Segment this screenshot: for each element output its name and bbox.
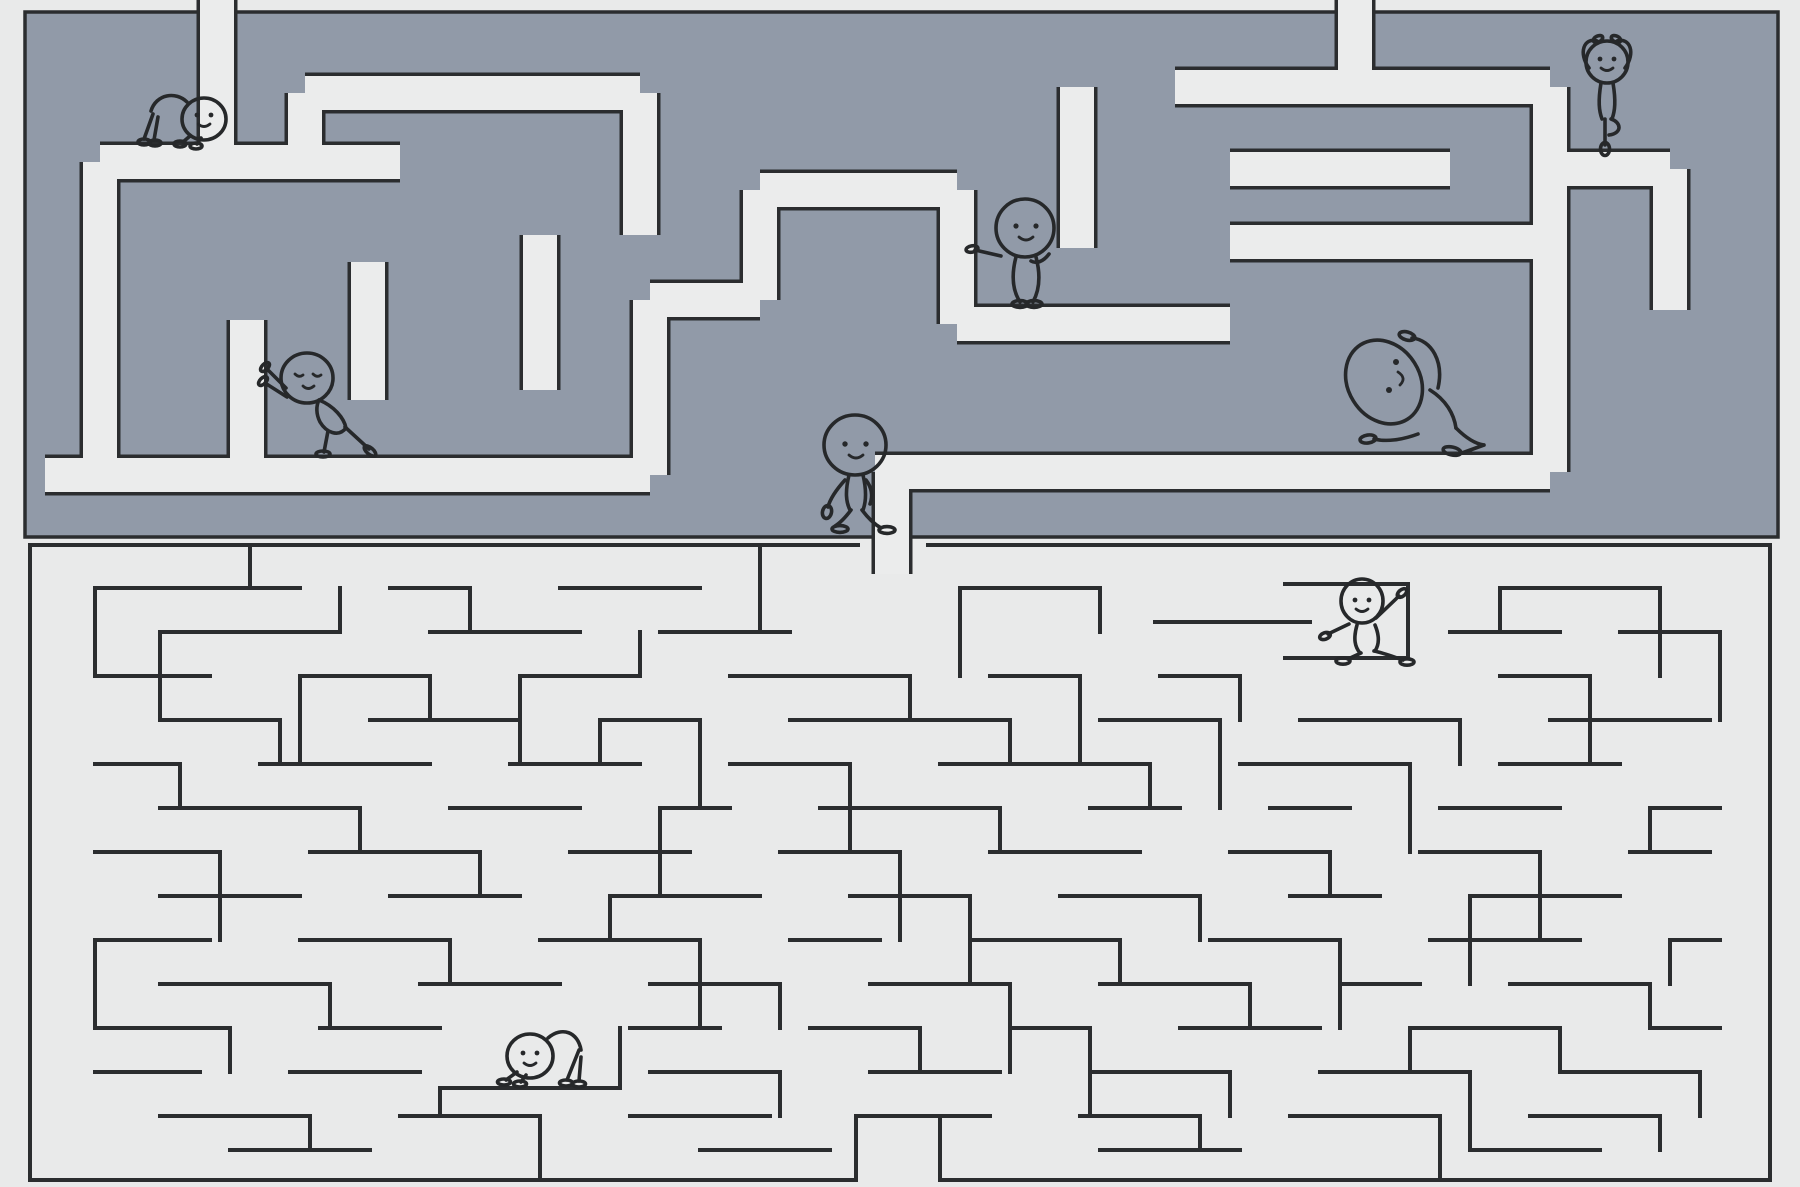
eye-dot bbox=[1598, 57, 1603, 62]
eye-dot bbox=[1386, 387, 1392, 393]
maze-scene bbox=[0, 0, 1800, 1187]
eye-dot bbox=[1612, 57, 1617, 62]
eye-dot bbox=[209, 113, 214, 118]
eye-dot bbox=[1013, 223, 1018, 228]
eye-dot bbox=[863, 441, 868, 446]
eye-dot bbox=[521, 1051, 526, 1056]
eye-dot bbox=[1353, 598, 1358, 603]
eye-dot bbox=[1367, 598, 1372, 603]
maze-illustration bbox=[0, 0, 1800, 1187]
top-maze bbox=[25, 0, 1778, 574]
eye-dot bbox=[1393, 359, 1399, 365]
eye-dot bbox=[535, 1051, 540, 1056]
eye-dot bbox=[842, 441, 847, 446]
eye-dot bbox=[1033, 223, 1038, 228]
eye-dot bbox=[195, 113, 200, 118]
